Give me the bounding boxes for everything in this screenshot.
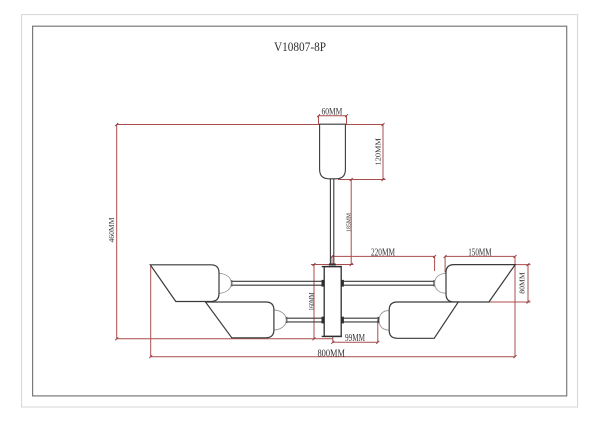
svg-text:220MM: 220MM [371, 248, 395, 259]
svg-text:V10807-8P: V10807-8P [274, 40, 326, 54]
svg-text:460MM: 460MM [109, 218, 116, 243]
svg-text:185MM: 185MM [345, 213, 352, 232]
svg-text:99MM: 99MM [345, 333, 365, 344]
svg-text:80MM: 80MM [519, 271, 527, 293]
svg-text:160MM: 160MM [309, 292, 316, 310]
svg-text:60MM: 60MM [322, 108, 343, 118]
svg-text:120MM: 120MM [375, 137, 383, 165]
svg-text:800MM: 800MM [317, 348, 345, 359]
svg-text:150MM: 150MM [468, 248, 491, 259]
